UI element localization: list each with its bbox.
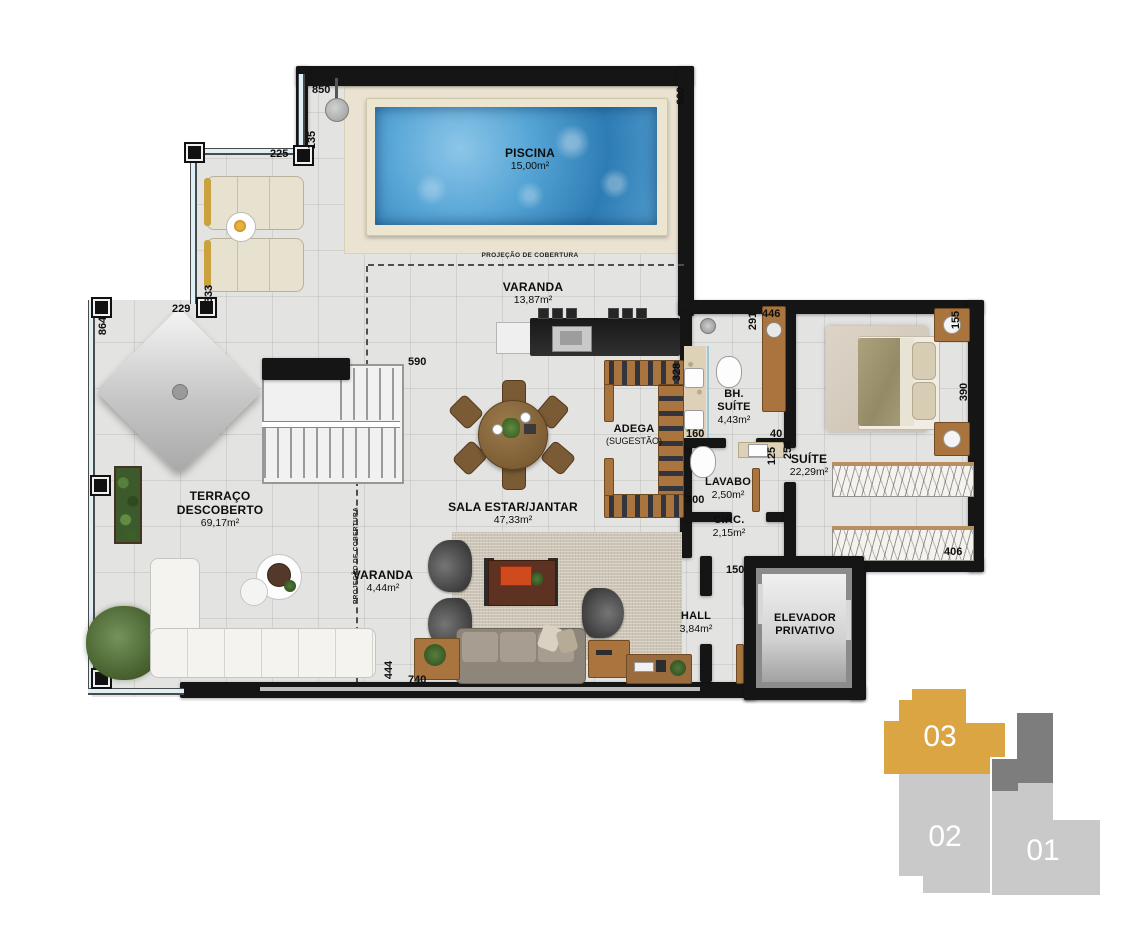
pillow: [912, 382, 936, 420]
dimension-label: 225: [270, 148, 288, 160]
dimension-label: 328: [671, 363, 683, 381]
barstool: [608, 308, 619, 319]
key-plan-unit-01-label[interactable]: 01: [1011, 834, 1075, 868]
table-lamp: [943, 430, 961, 448]
wall-segment: [296, 66, 694, 86]
glass-railing: [298, 74, 305, 152]
washbasin: [684, 368, 704, 388]
lounger-frame: [204, 178, 211, 226]
dimension-label: 446: [762, 308, 780, 320]
tray: [500, 566, 532, 586]
potted-plant: [424, 644, 446, 666]
room-label-lavabo: LAVABO 2,50m²: [696, 476, 760, 501]
room-label-circ: CIRC. 2,15m²: [698, 514, 760, 539]
dimension-label: 150: [726, 564, 744, 576]
stair-handrail: [262, 421, 400, 428]
kitchen-cabinet: [496, 322, 532, 354]
dimension-label: 200: [686, 494, 704, 506]
dimension-label: 291: [747, 312, 759, 330]
armchair: [428, 540, 472, 592]
potted-plant: [531, 572, 543, 586]
room-label-sala: SALA ESTAR/JANTAR 47,33m²: [438, 500, 588, 527]
wardrobe: [832, 462, 974, 497]
barstool: [566, 308, 577, 319]
pillow: [912, 342, 936, 380]
umbrella-pole: [172, 384, 188, 400]
sink-basin: [560, 331, 582, 345]
barstool: [538, 308, 549, 319]
dimension-label: 850: [312, 84, 330, 96]
room-label-piscina: PISCINA 15,00m²: [470, 146, 590, 173]
key-plan-unit-03-label[interactable]: 03: [908, 720, 972, 754]
dimension-label: 155: [950, 311, 962, 329]
barstool: [636, 308, 647, 319]
wall-segment: [700, 556, 712, 596]
dimension-label: 125: [766, 447, 778, 465]
railing-post: [188, 146, 201, 159]
armchair: [582, 588, 624, 638]
plate: [492, 424, 503, 435]
sun-lounger: [206, 238, 304, 292]
washbasin: [684, 410, 704, 430]
shower-head-icon: [700, 318, 716, 334]
sofa-cushion: [462, 632, 498, 662]
lounger-frame: [204, 240, 211, 288]
potted-plant: [284, 580, 296, 592]
bed-duvet: [858, 338, 902, 426]
railing-post: [94, 479, 107, 492]
wine-rack: [604, 494, 684, 518]
room-label-hall: HALL 3,84m²: [668, 610, 724, 635]
stair-treads: [264, 428, 398, 478]
decor-item: [596, 650, 612, 655]
sliding-door-track: [260, 687, 700, 691]
potted-plant: [670, 660, 686, 676]
dimension-label: 740: [408, 674, 426, 686]
room-label-terraco: TERRAÇO DESCOBERTO 69,17m²: [158, 489, 282, 530]
wall-segment: [784, 482, 796, 558]
dimension-label: 333: [203, 285, 215, 303]
barstool: [622, 308, 633, 319]
vanity-sink: [766, 322, 782, 338]
sofa-cushion: [500, 632, 536, 662]
toilet: [690, 446, 716, 478]
tray: [524, 424, 536, 434]
dimension-label: 160: [686, 428, 704, 440]
room-label-adega: ADEGA (SUGESTÃO): [599, 423, 669, 447]
outdoor-shower-icon: [325, 98, 349, 122]
dimension-label: 135: [306, 131, 318, 149]
dimension-label: 390: [958, 383, 970, 401]
coverage-projection-label: PROJEÇÃO DE COBERTURA: [353, 496, 360, 616]
dimension-label: 600: [675, 87, 687, 105]
toilet: [716, 356, 742, 388]
railing-post: [95, 301, 108, 314]
coverage-projection-line: [366, 266, 368, 366]
coverage-projection-label: PROJEÇÃO DE COBERTURA: [430, 252, 630, 259]
washbasin: [748, 444, 768, 457]
railing-post: [297, 149, 310, 162]
door-leaf: [736, 644, 744, 684]
room-label-bh-suite: BH. SUÍTE 4,43m²: [706, 388, 762, 426]
room-label-varanda-side: VARANDA 4,44m²: [346, 568, 420, 595]
key-plan-unit-02-label[interactable]: 02: [913, 820, 977, 854]
side-table: [588, 640, 630, 678]
dimension-label: 444: [383, 661, 395, 679]
room-label-elevador: ELEVADOR PRIVATIVO: [759, 612, 851, 638]
glass-railing: [88, 688, 184, 695]
wine-rack: [604, 384, 614, 422]
wall-segment: [700, 644, 712, 682]
round-table: [240, 578, 268, 606]
room-label-varanda-top: VARANDA 13,87m²: [478, 280, 588, 307]
dimension-label: 406: [944, 546, 962, 558]
planter: [114, 466, 142, 544]
outdoor-sofa: [150, 628, 376, 678]
table-centerpiece: [502, 418, 520, 438]
stair-wall: [262, 358, 350, 380]
coverage-projection-line: [368, 264, 684, 266]
dimension-label: 590: [408, 356, 426, 368]
plate: [520, 412, 531, 423]
floor-plan: PROJEÇÃO DE COBERTURA PROJEÇÃO DE COBERT…: [0, 0, 1140, 936]
table-tray: [234, 220, 246, 232]
wine-rack: [604, 458, 614, 496]
decor-item: [656, 660, 666, 672]
decor-item: [634, 662, 654, 672]
glass-railing: [190, 150, 197, 304]
barstool: [552, 308, 563, 319]
dimension-label: 229: [172, 303, 190, 315]
glass-railing: [190, 148, 306, 155]
dimension-label: 40: [770, 428, 782, 440]
dimension-label: 254: [782, 441, 794, 459]
dimension-label: 864: [97, 317, 109, 335]
